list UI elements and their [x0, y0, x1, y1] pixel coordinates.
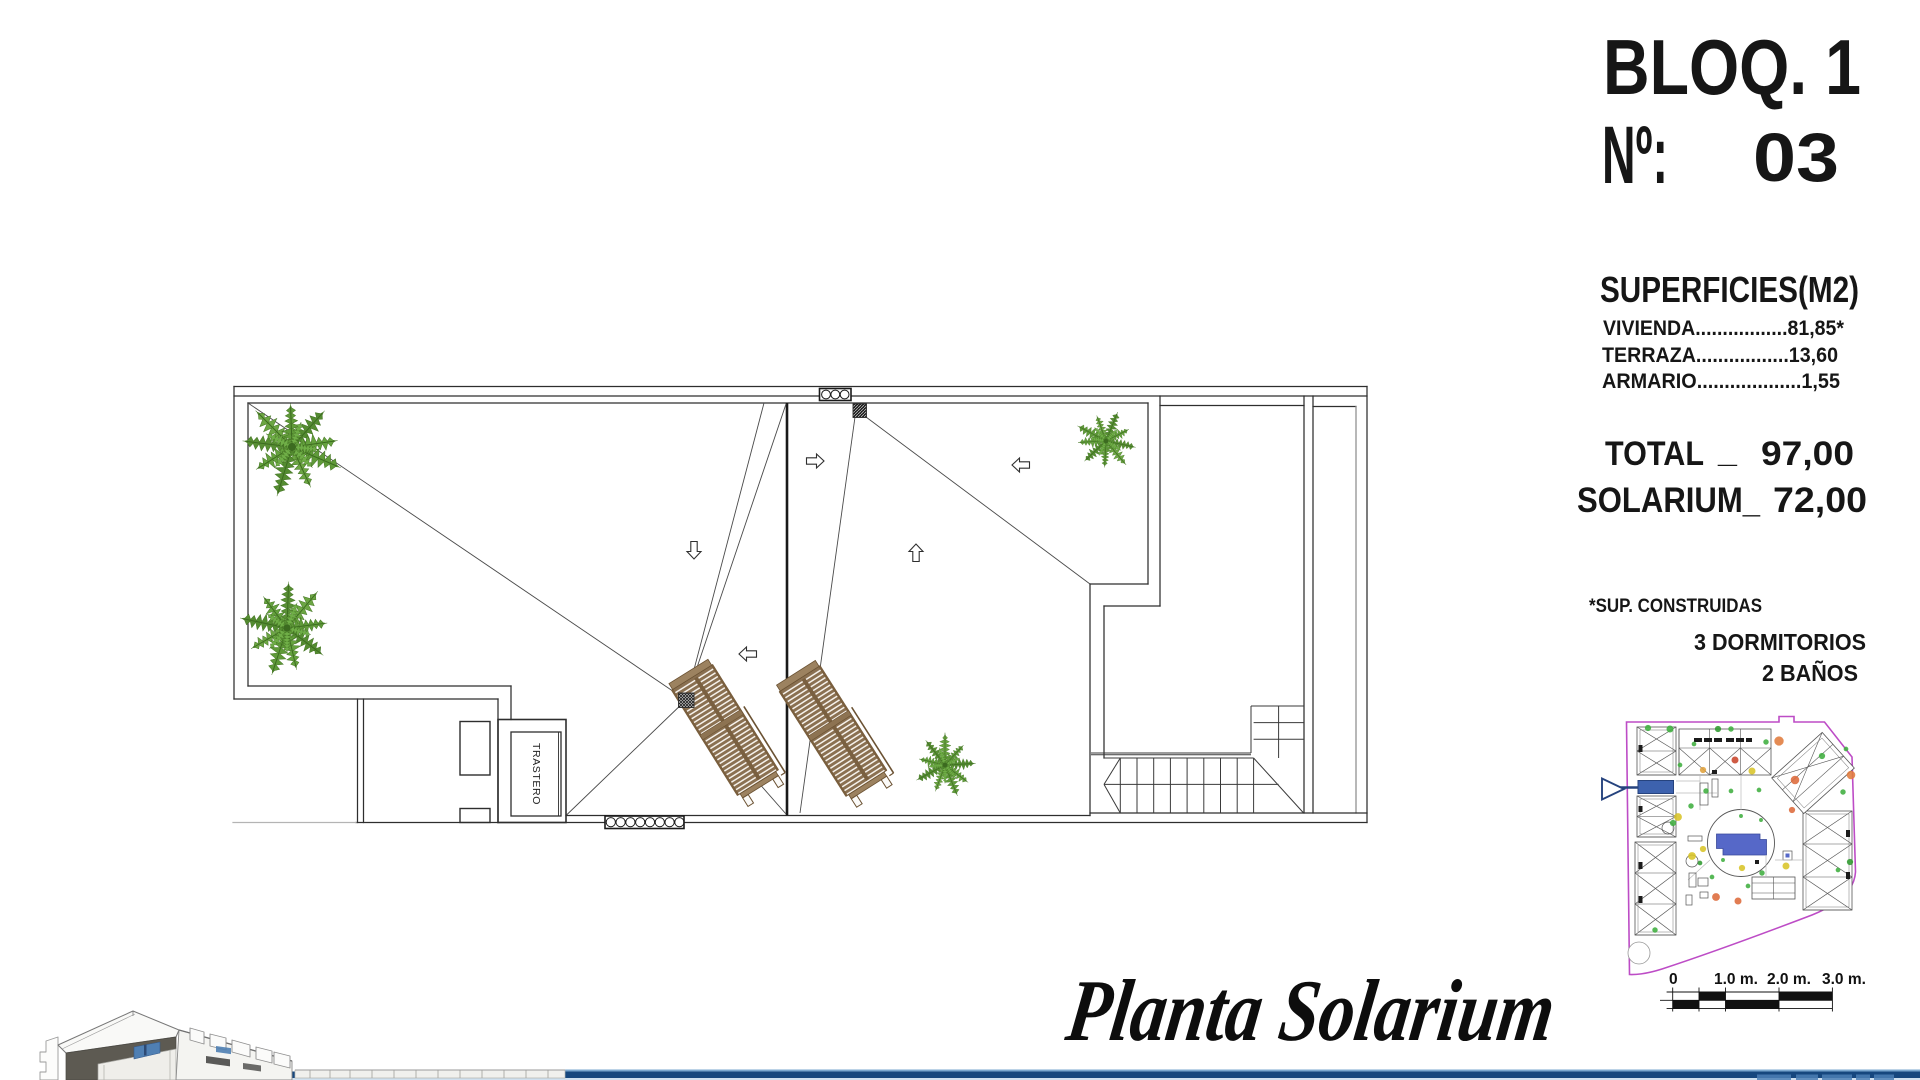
svg-text:_: _	[1717, 432, 1738, 470]
svg-text:2.0 m.: 2.0 m.	[1767, 971, 1811, 988]
svg-text:TOTAL: TOTAL	[1605, 435, 1704, 473]
svg-text:3 DORMITORIOS: 3 DORMITORIOS	[1694, 629, 1866, 655]
svg-text:Planta Solarium: Planta Solarium	[1060, 962, 1561, 1060]
svg-text:0: 0	[1669, 971, 1678, 988]
svg-text:97,00: 97,00	[1761, 435, 1854, 473]
svg-text:SUPERFICIES(M2): SUPERFICIES(M2)	[1600, 269, 1859, 310]
svg-text:TERRAZA.................13,60: TERRAZA.................13,60	[1602, 344, 1838, 367]
svg-text:03: 03	[1753, 119, 1839, 196]
svg-text:ARMARIO...................1,55: ARMARIO...................1,55	[1602, 370, 1840, 393]
svg-text:72,00: 72,00	[1773, 481, 1867, 520]
svg-text:3.0 m.: 3.0 m.	[1822, 971, 1866, 988]
svg-text:BLOQ. 1: BLOQ. 1	[1603, 23, 1861, 111]
svg-text:Nº:: Nº:	[1602, 110, 1668, 201]
svg-text:TRASTERO: TRASTERO	[530, 743, 542, 805]
svg-text:1.0 m.: 1.0 m.	[1714, 971, 1758, 988]
svg-text:SOLARIUM_: SOLARIUM_	[1577, 481, 1760, 520]
svg-text:*SUP. CONSTRUIDAS: *SUP. CONSTRUIDAS	[1589, 596, 1762, 617]
svg-text:2 BAÑOS: 2 BAÑOS	[1762, 659, 1858, 686]
svg-text:VIVIENDA.................81,85: VIVIENDA.................81,85*	[1603, 317, 1845, 340]
